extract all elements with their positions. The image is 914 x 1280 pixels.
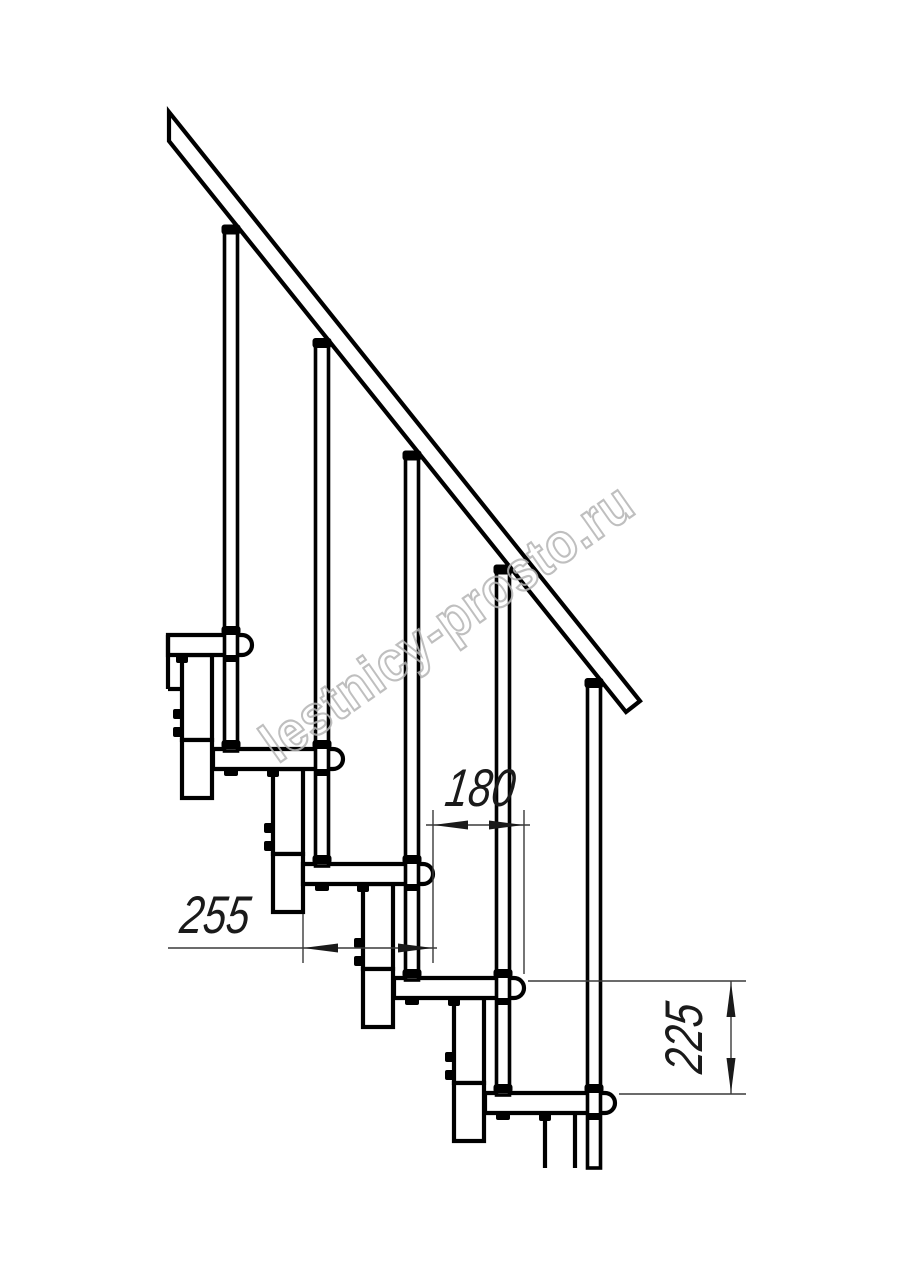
dimension-label-225: 225: [655, 999, 714, 1077]
arrowhead-down: [727, 1058, 736, 1093]
dimension-label-255: 255: [176, 886, 254, 945]
base-flange: [403, 969, 422, 978]
support-column-2: [264, 769, 303, 912]
column-bolt: [354, 956, 364, 966]
dimension-180: 180: [426, 759, 530, 974]
base-flange: [222, 740, 241, 749]
dimension-225: 225: [528, 981, 746, 1094]
base-flange: [494, 1084, 513, 1093]
under-tread-nut: [496, 1113, 510, 1120]
support-column-1: [173, 655, 212, 798]
tread-flange: [494, 969, 513, 978]
under-tread-nut: [224, 655, 238, 662]
rail-flange: [403, 451, 422, 461]
dimension-label-180: 180: [442, 759, 520, 818]
rail-flange: [222, 225, 241, 235]
column-bracket: [182, 740, 212, 798]
column-bolt: [445, 1070, 455, 1080]
column-bolt: [445, 1052, 455, 1062]
baluster-5-rod: [588, 682, 601, 1168]
tread-flange: [222, 626, 241, 635]
column-upper: [182, 655, 212, 740]
rail-flange: [585, 678, 604, 688]
column-upper: [363, 884, 393, 969]
column-bracket: [363, 969, 393, 1027]
column-bracket: [273, 854, 303, 912]
column-upper: [273, 769, 303, 854]
tread-flange: [585, 1084, 604, 1093]
watermark-text: lestnicy-prosto.ru: [249, 470, 646, 774]
baluster-1-rod: [225, 228, 238, 751]
support-column-3: [354, 884, 393, 1027]
under-tread-nut: [315, 769, 329, 776]
baluster-2-rod: [316, 342, 329, 866]
support-column-5: [539, 1113, 575, 1168]
column-bracket: [454, 1083, 484, 1141]
rail-flange: [313, 338, 332, 348]
under-tread-nut: [587, 1113, 601, 1120]
under-tread-nut: [496, 998, 510, 1005]
column-upper: [454, 998, 484, 1083]
arrowhead-up: [727, 982, 736, 1017]
drawing-canvas: 180 255 225 lestnicy-prosto.ru: [0, 0, 914, 1280]
baluster-3-rod: [406, 454, 419, 980]
under-tread-nut: [405, 998, 419, 1005]
column-bolt: [264, 841, 274, 851]
column-bolt: [173, 727, 183, 737]
column-bolt: [264, 823, 274, 833]
base-flange: [313, 855, 332, 864]
tread-flange: [403, 855, 422, 864]
support-column-4: [445, 998, 484, 1141]
under-tread-nut: [315, 884, 329, 891]
arrowhead-left: [433, 821, 468, 830]
staircase-technical-drawing: 180 255 225 lestnicy-prosto.ru: [0, 0, 914, 1280]
column-bolt: [354, 938, 364, 948]
under-tread-nut: [405, 884, 419, 891]
arrowhead-left: [303, 944, 338, 953]
tread-1: [168, 635, 252, 655]
under-tread-nut: [224, 769, 238, 776]
column-bolt: [173, 709, 183, 719]
baluster-4-rod: [497, 568, 510, 1095]
